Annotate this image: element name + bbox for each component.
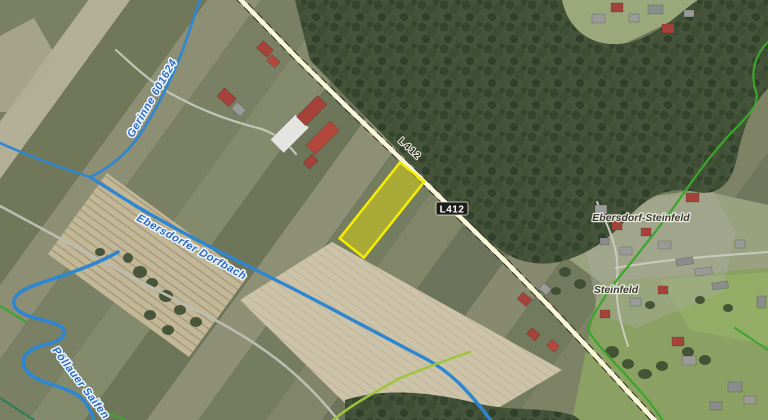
building [629, 14, 639, 22]
building [682, 356, 696, 365]
route-badge-text: L412 [440, 205, 465, 216]
building [641, 228, 651, 236]
building [684, 10, 694, 17]
building [658, 241, 671, 249]
map-viewport: Gerinne 601624 Ebersdorfer Dorfbach Pöll… [0, 0, 768, 420]
place-label-steinfeld: Steinfeld [594, 284, 639, 296]
building [611, 3, 623, 12]
building [600, 310, 610, 318]
building [620, 247, 632, 255]
building [728, 382, 742, 392]
route-badge: L412 [436, 202, 468, 216]
building [672, 337, 684, 346]
map-canvas[interactable]: Gerinne 601624 Ebersdorfer Dorfbach Pöll… [0, 0, 768, 420]
building [735, 240, 745, 248]
building [592, 14, 605, 23]
building [658, 286, 668, 294]
building [757, 296, 766, 308]
building [630, 298, 641, 306]
building [662, 24, 674, 33]
building [686, 193, 699, 202]
building [600, 238, 609, 245]
building [744, 396, 756, 404]
building [648, 5, 663, 14]
place-label-ebersdorf-steinfeld: Ebersdorf-Steinfeld [592, 212, 690, 224]
building [710, 402, 722, 410]
